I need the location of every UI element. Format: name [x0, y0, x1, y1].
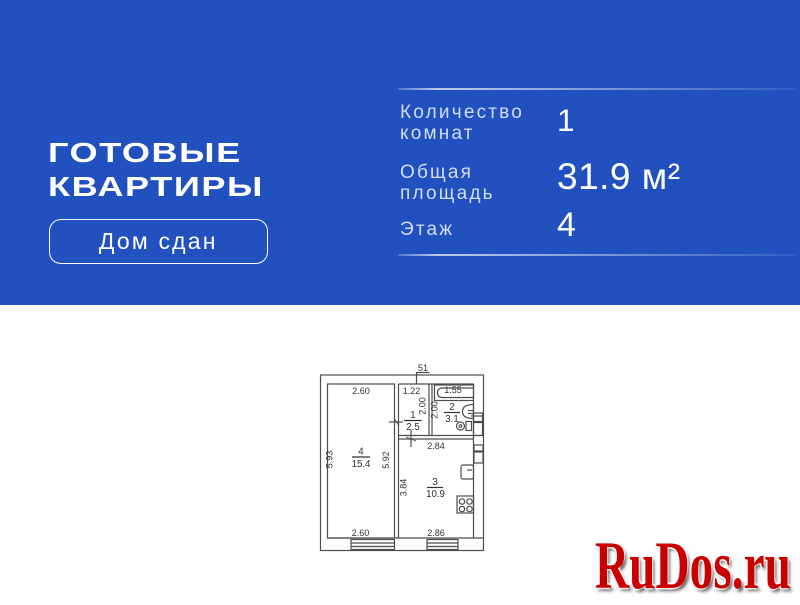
svg-text:4: 4: [358, 447, 364, 458]
svg-text:1.55: 1.55: [444, 385, 462, 395]
svg-text:2.5: 2.5: [406, 422, 419, 433]
svg-text:1: 1: [410, 410, 415, 421]
svg-text:2.00: 2.00: [418, 397, 428, 415]
svg-text:15.4: 15.4: [352, 459, 371, 470]
svg-text:2: 2: [449, 402, 454, 413]
svg-text:2.84: 2.84: [427, 441, 445, 451]
svg-text:51: 51: [418, 363, 428, 373]
svg-text:3.84: 3.84: [399, 479, 409, 497]
svg-text:5.93: 5.93: [325, 451, 335, 469]
svg-text:2.60: 2.60: [352, 386, 370, 396]
svg-text:1.22: 1.22: [403, 386, 421, 396]
svg-text:2.60: 2.60: [352, 528, 370, 538]
svg-text:3.1: 3.1: [445, 414, 458, 425]
svg-text:2.00: 2.00: [430, 401, 440, 419]
svg-text:5.92: 5.92: [381, 451, 391, 469]
svg-text:2.86: 2.86: [427, 528, 445, 538]
svg-text:3: 3: [432, 477, 437, 488]
svg-text:10.9: 10.9: [426, 489, 445, 500]
